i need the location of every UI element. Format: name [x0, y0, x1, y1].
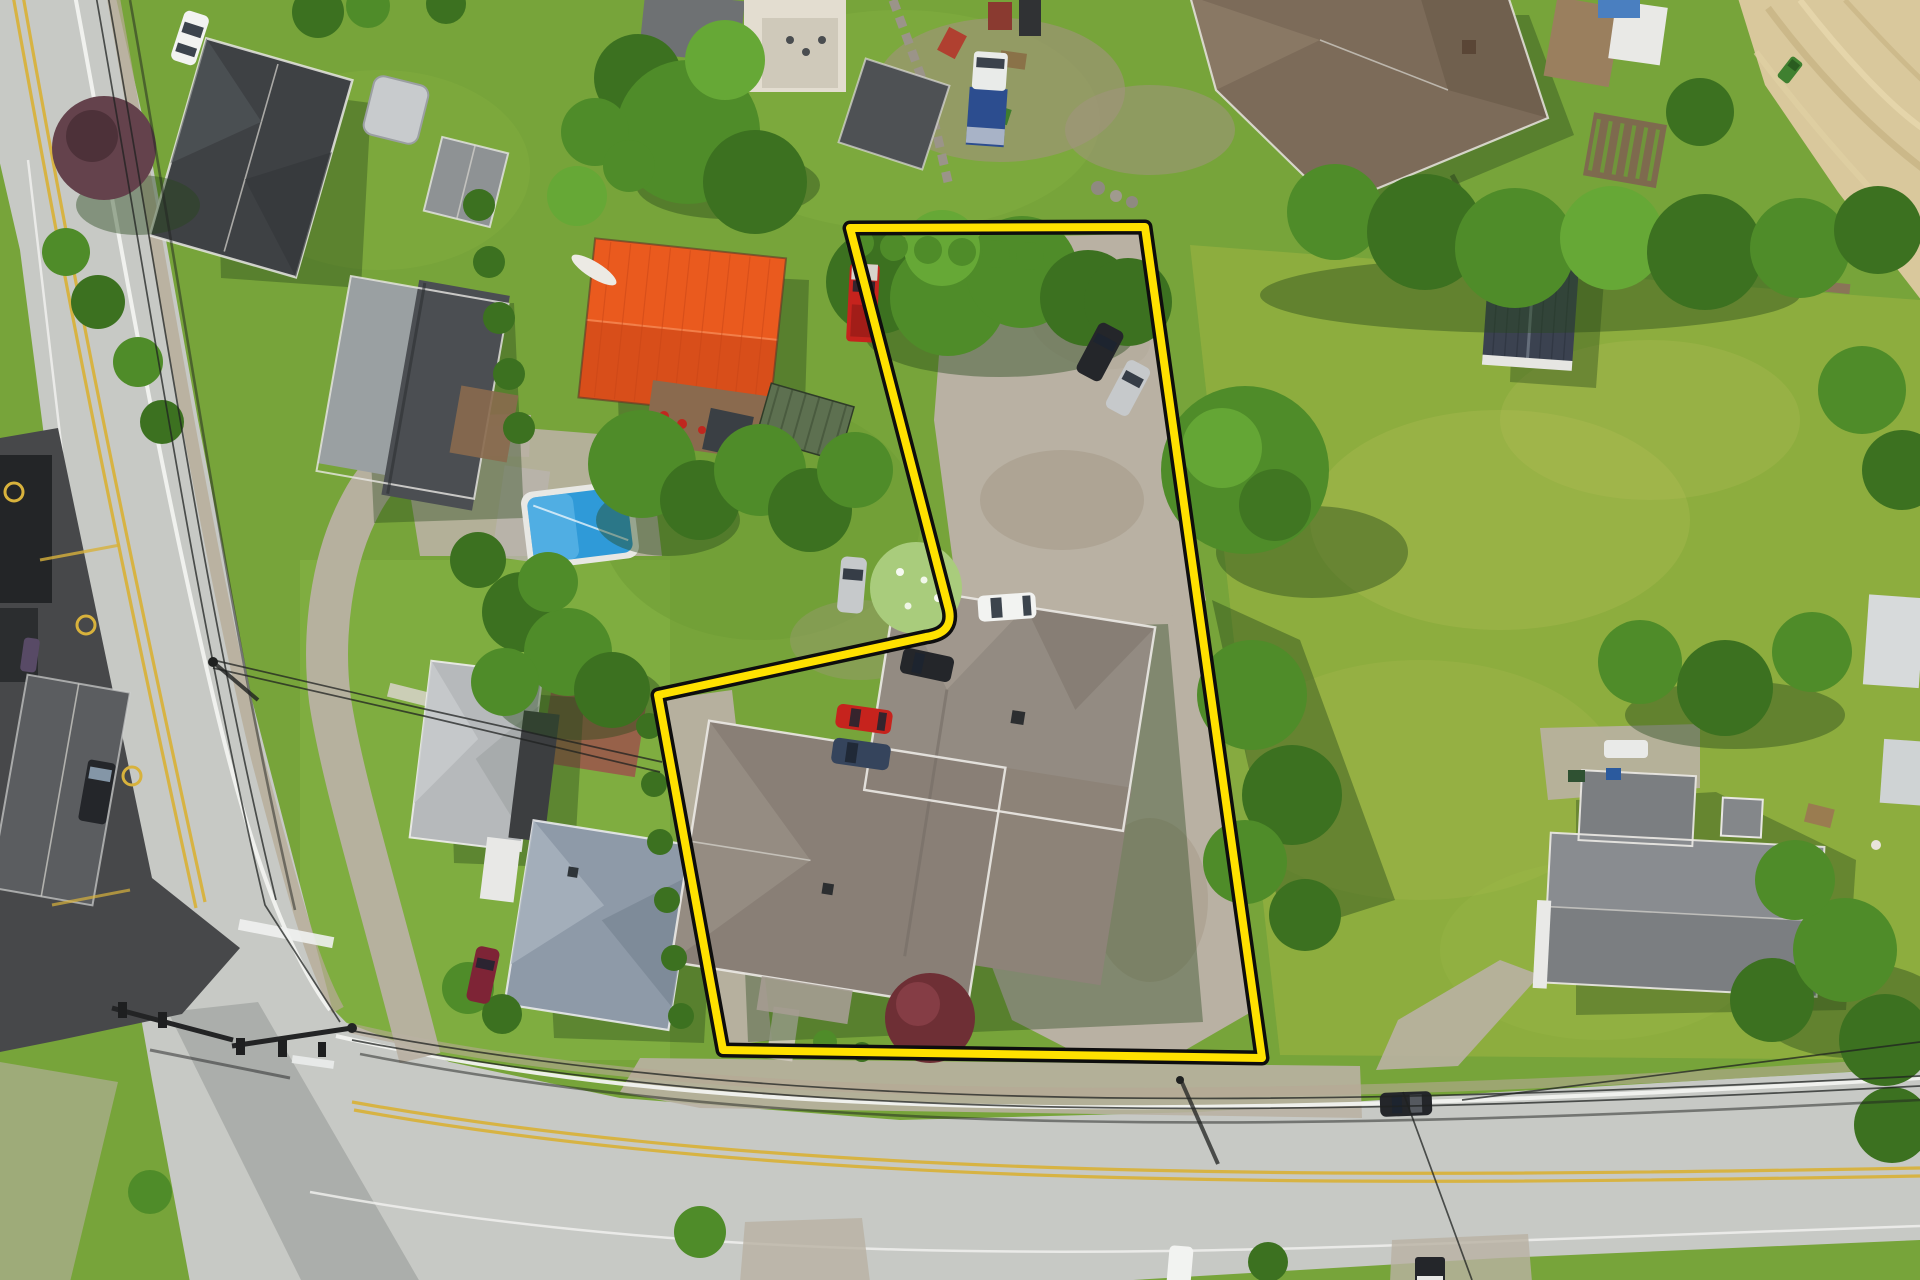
- truck-dark-top: [1019, 0, 1041, 36]
- person: [1871, 840, 1881, 850]
- trailer-red-top: [988, 2, 1012, 30]
- car-white-mid-lot: [977, 592, 1037, 622]
- blue-bin: [1606, 768, 1621, 780]
- south-driveway-2: [1390, 1234, 1532, 1280]
- flat-roof-building: [0, 455, 52, 603]
- chimney: [1462, 40, 1476, 54]
- vehicle-bottom-partial: [1415, 1257, 1445, 1280]
- aerial-scene: [0, 0, 1920, 1280]
- aerial-photo-canvas: [0, 0, 1920, 1280]
- south-driveway-1: [740, 1218, 870, 1280]
- green-bin: [1568, 770, 1585, 782]
- car-silver-midwest: [837, 556, 868, 614]
- camper-trailer: [1604, 740, 1648, 758]
- car-white-bottom-edge: [1166, 1245, 1193, 1280]
- blue-tarp: [1598, 0, 1640, 18]
